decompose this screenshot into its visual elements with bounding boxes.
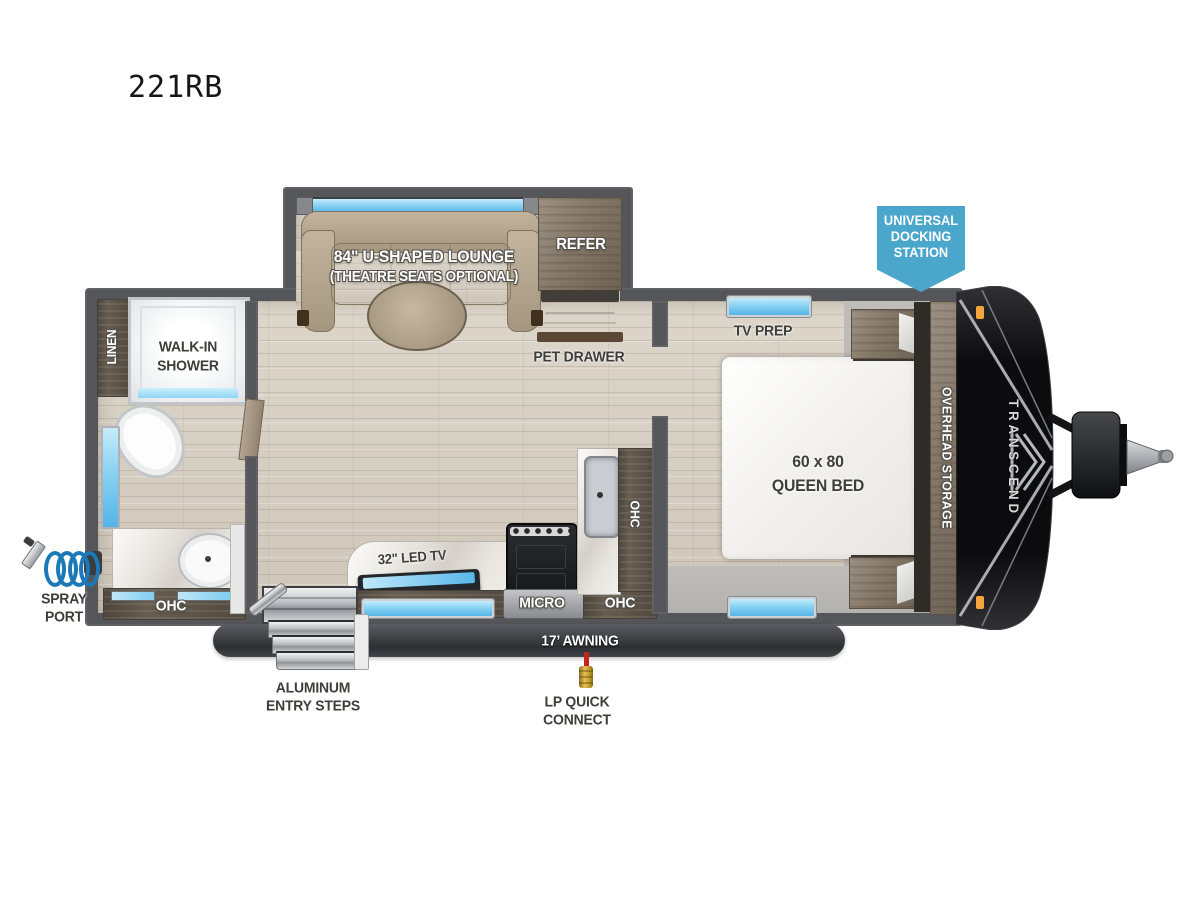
floorplan-canvas: 221RB 84" U-SHAPED LOUNGE (THEATRE SEATS… <box>0 0 1200 900</box>
jack-post <box>1120 424 1127 486</box>
uds-line3: STATION <box>879 245 963 261</box>
bed-label-line2: QUEEN BED <box>772 476 864 496</box>
lounge-label-line1: 84" U-SHAPED LOUNGE <box>334 247 515 267</box>
uds-line1: UNIVERSAL <box>879 213 963 229</box>
pet-drawer-label: PET DRAWER <box>533 349 624 366</box>
awning-label: 17’ AWNING <box>541 633 618 650</box>
kitchen-exterior-window <box>362 599 494 618</box>
kitchen-faucet <box>597 492 603 498</box>
propane-cover <box>1072 412 1120 498</box>
step-side-bracket <box>354 614 369 670</box>
floorplan-model-title: 221RB <box>128 70 223 105</box>
refer-label: REFER <box>556 236 606 254</box>
tv-prep-label: TV PREP <box>734 323 792 340</box>
universal-docking-station-badge: UNIVERSAL DOCKING STATION <box>877 206 965 292</box>
pet-drawer-base <box>537 332 623 342</box>
bed-label-line1: 60 x 80 <box>792 452 843 472</box>
lounge-label-line2: (THEATRE SEATS OPTIONAL) <box>330 269 518 285</box>
bedroom-bottom-window <box>728 597 816 618</box>
entry-door-panel <box>230 524 245 614</box>
bedroom-wall-upper <box>652 301 668 347</box>
hitch-coupler <box>1127 440 1163 474</box>
stove-knob-strip <box>510 527 570 536</box>
stove-burner-top <box>516 545 566 569</box>
lp-label-line1: LP QUICK <box>545 694 610 711</box>
trailer-hitch <box>1046 398 1174 514</box>
micro-label: MICRO <box>519 595 565 612</box>
bathroom-side-window <box>101 426 120 529</box>
bathroom-wall-upper <box>245 301 258 401</box>
lounge-ottoman-table <box>367 281 467 351</box>
pet-drawer-top <box>541 290 619 302</box>
kitchen-ohc-label: OHC <box>605 595 635 612</box>
shower-label-line1: WALK-IN <box>159 339 217 356</box>
spray-coil-4 <box>79 551 100 587</box>
spray-label-line1: SPRAY <box>41 591 87 608</box>
overhead-storage-label: OVERHEAD STORAGE <box>940 387 955 529</box>
linen-label: LINEN <box>105 330 119 365</box>
shower-label-line2: SHOWER <box>157 358 219 375</box>
kitchen-ohc-side-label: OHC <box>628 501 643 528</box>
spray-nozzle <box>21 540 46 569</box>
kitchen-tv-screen <box>363 572 475 589</box>
bathroom-wall-lower <box>245 456 258 614</box>
shower-glass-door <box>138 388 238 398</box>
lp-line <box>584 652 589 667</box>
marker-light-top <box>976 306 984 319</box>
front-cap-brand-label: TRANSCEND <box>1006 399 1022 517</box>
steps-label-line2: ENTRY STEPS <box>266 698 360 715</box>
pet-drawer-face <box>543 302 617 334</box>
tv-prep-window <box>727 296 811 317</box>
marker-light-bottom <box>976 596 984 609</box>
bedroom-wall-lower <box>652 416 668 614</box>
bathroom-ohc-glass-left <box>111 591 155 601</box>
steps-label-line1: ALUMINUM <box>276 680 350 697</box>
bed-headboard <box>914 302 930 612</box>
bathroom-faucet <box>205 556 211 562</box>
lp-quick-connect-icon <box>579 666 593 688</box>
bathroom-ohc-label: OHC <box>156 598 186 615</box>
coupler-ball <box>1161 450 1173 462</box>
sofa-foot-right <box>531 310 543 326</box>
spray-label-line2: PORT <box>45 609 83 626</box>
lp-label-line2: CONNECT <box>543 712 611 729</box>
uds-line2: DOCKING <box>879 229 963 245</box>
sofa-foot-left <box>297 310 309 326</box>
